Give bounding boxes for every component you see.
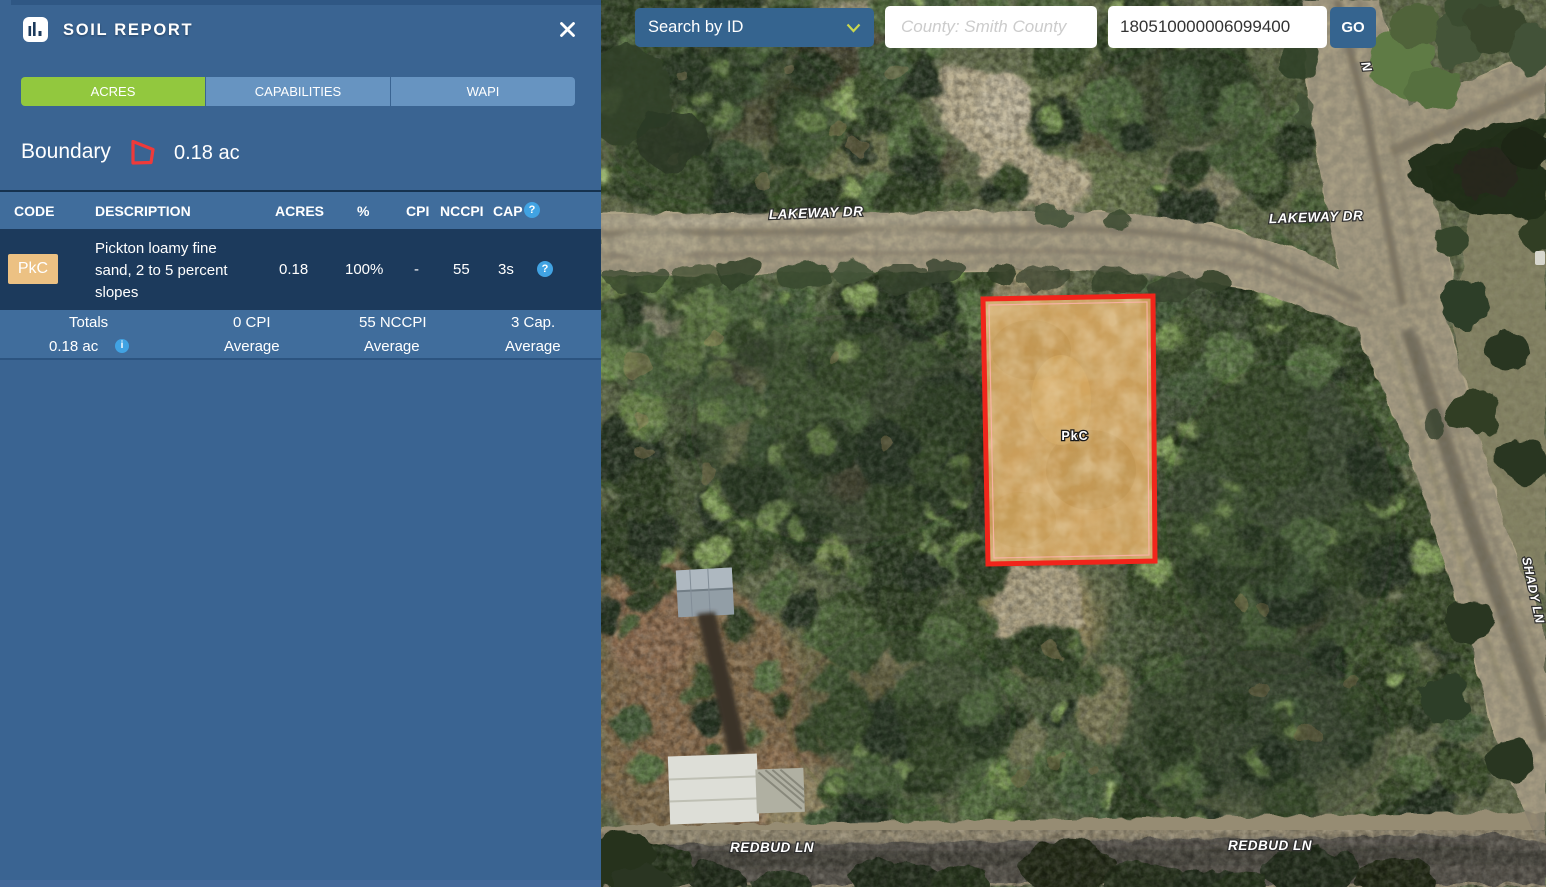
svg-text:PkC: PkC [1061,429,1088,443]
svg-text:REDBUD LN: REDBUD LN [1228,838,1312,853]
svg-text:REDBUD LN: REDBUD LN [730,840,814,855]
